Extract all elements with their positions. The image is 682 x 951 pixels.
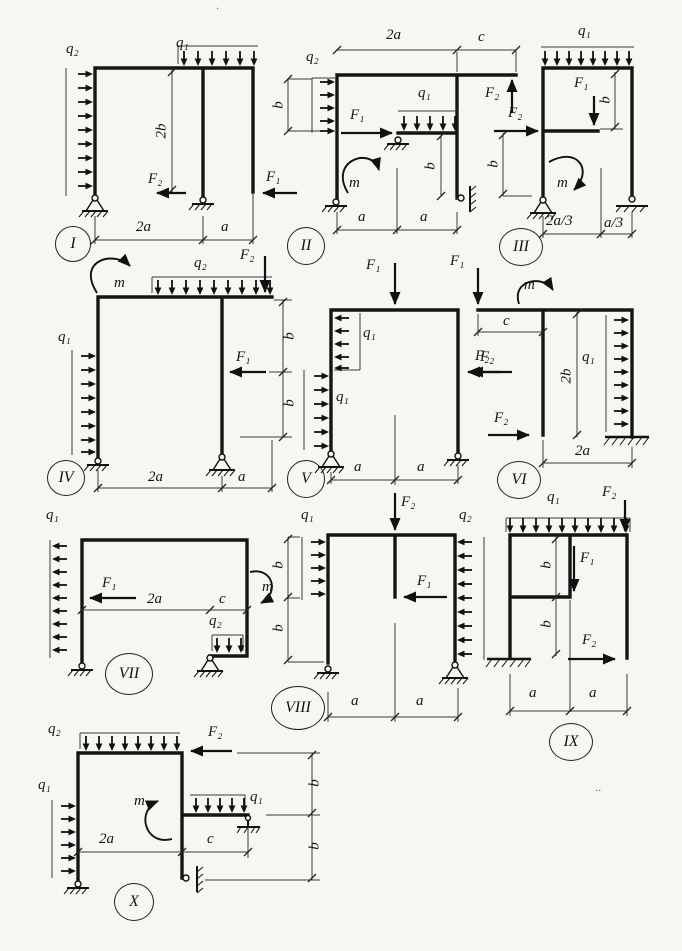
pin-support bbox=[439, 662, 468, 684]
dim-label: c bbox=[478, 30, 485, 45]
dim-label: b bbox=[272, 101, 287, 109]
diagram-VII-structure bbox=[50, 540, 272, 677]
load-label: q₁ bbox=[38, 778, 51, 793]
force-label: F₂ bbox=[494, 411, 508, 426]
diagram-X-structure bbox=[52, 733, 320, 894]
force-label: F₂ bbox=[240, 248, 254, 263]
diagram-I-structure bbox=[66, 46, 297, 244]
dim-label: b bbox=[308, 779, 323, 787]
dim-label: a/3 bbox=[604, 216, 623, 231]
roller-support bbox=[64, 881, 89, 894]
dim-label: a bbox=[358, 210, 366, 225]
force-label: F₁ bbox=[417, 574, 431, 589]
moment-label: m bbox=[134, 794, 145, 809]
force-label: F₁ bbox=[366, 258, 380, 273]
fixed-support bbox=[486, 659, 531, 667]
dim-label: 2b bbox=[155, 124, 170, 139]
dim-label: b bbox=[487, 160, 502, 168]
pin-support bbox=[79, 195, 108, 217]
force-label: F₂ bbox=[475, 349, 489, 364]
roller-support bbox=[189, 197, 214, 210]
load-label: q₁ bbox=[363, 326, 376, 341]
dim-label: a bbox=[238, 470, 246, 485]
dim-label: b bbox=[272, 561, 287, 569]
roller-support bbox=[444, 453, 469, 466]
dim-label: 2a bbox=[136, 220, 151, 235]
roller-support bbox=[84, 458, 109, 471]
force-label: F₂ bbox=[148, 172, 162, 187]
frame-diagrams-svg bbox=[0, 0, 682, 951]
roller-support bbox=[314, 666, 339, 679]
interior-roller-support bbox=[384, 137, 409, 150]
pin-support bbox=[194, 655, 223, 677]
dim-label: b bbox=[540, 561, 555, 569]
dim-label: a bbox=[221, 220, 229, 235]
dim-label: 2a bbox=[147, 592, 162, 607]
member-end-roller-circle bbox=[246, 816, 251, 821]
diagram-number: IX bbox=[549, 723, 593, 761]
dim-label: a bbox=[417, 460, 425, 475]
dim-label: c bbox=[207, 832, 214, 847]
moment-label: m bbox=[114, 276, 125, 291]
diagram-number: II bbox=[287, 227, 325, 265]
diagram-number: VII bbox=[105, 653, 153, 695]
dim-label: b bbox=[283, 399, 298, 407]
roller-support bbox=[322, 199, 347, 212]
moment-label: m bbox=[524, 278, 535, 293]
dim-label: a bbox=[589, 686, 597, 701]
diagram-number: VI bbox=[497, 461, 541, 499]
scan-artifact-dot: ·· bbox=[595, 786, 601, 797]
dim-label: 2a/3 bbox=[546, 214, 573, 229]
load-label: q₁ bbox=[336, 390, 349, 405]
dim-label: a bbox=[416, 694, 424, 709]
dim-label: 2a bbox=[575, 444, 590, 459]
dim-label: 2a bbox=[99, 832, 114, 847]
load-label: q₂ bbox=[459, 508, 472, 523]
moment-label: m bbox=[349, 176, 360, 191]
diagram-VIII-structure bbox=[284, 493, 484, 722]
fixed-support bbox=[604, 437, 649, 445]
dim-label: a bbox=[529, 686, 537, 701]
load-label: q₂ bbox=[194, 256, 207, 271]
dim-label: b bbox=[540, 620, 555, 628]
load-label: q₂ bbox=[306, 50, 319, 65]
load-label: q₁ bbox=[301, 508, 314, 523]
member-end-roller-support bbox=[237, 820, 260, 827]
force-label: F₁ bbox=[350, 108, 364, 123]
load-label: q₁ bbox=[46, 508, 59, 523]
diagram-V-structure bbox=[304, 263, 500, 485]
force-label: F₁ bbox=[266, 170, 280, 185]
scanned-problem-sheet: q₂ q₁ 2b F₂ F₁ 2a a I q₂ 2a c b F₁ q₁ m … bbox=[0, 0, 682, 951]
dim-label: 2b bbox=[560, 369, 575, 384]
force-label: F₁ bbox=[574, 76, 588, 91]
dim-label: c bbox=[503, 314, 510, 329]
scan-artifact-dot: · bbox=[216, 4, 219, 15]
dim-label: b bbox=[272, 624, 287, 632]
dim-label: 2a bbox=[386, 28, 401, 43]
moment-label: m bbox=[557, 176, 568, 191]
diagram-number: IV bbox=[47, 460, 85, 496]
dim-label: b bbox=[283, 332, 298, 340]
load-label: q₁ bbox=[58, 330, 71, 345]
force-label: F₂ bbox=[602, 485, 616, 500]
load-label: q₁ bbox=[547, 490, 560, 505]
roller-circle bbox=[629, 196, 635, 202]
load-label: q₂ bbox=[209, 614, 222, 629]
dim-label: b bbox=[308, 842, 323, 850]
load-label: q₂ bbox=[66, 42, 79, 57]
load-label: q₁ bbox=[250, 790, 263, 805]
moment-label: m bbox=[262, 580, 273, 595]
force-label: F₁ bbox=[102, 576, 116, 591]
dim-label: a bbox=[354, 460, 362, 475]
diagram-number: VIII bbox=[271, 686, 325, 730]
bracket-hinge-circle bbox=[183, 875, 189, 881]
diagram-IV-structure bbox=[72, 256, 292, 492]
pin-support bbox=[206, 454, 235, 476]
dim-label: 2a bbox=[148, 470, 163, 485]
diagram-IX-structure bbox=[486, 500, 631, 716]
load-label: q₁ bbox=[176, 36, 189, 51]
load-label: q₂ bbox=[48, 722, 61, 737]
hinge-circle bbox=[458, 195, 464, 201]
diagram-number: I bbox=[55, 226, 91, 262]
diagram-number: X bbox=[114, 883, 154, 921]
force-label: F₁ bbox=[450, 254, 464, 269]
force-label: F₂ bbox=[401, 495, 415, 510]
dim-label: b bbox=[424, 162, 439, 170]
diagram-number: V bbox=[287, 460, 325, 498]
dim-label: c bbox=[219, 592, 226, 607]
dim-label: a bbox=[351, 694, 359, 709]
force-label: F₁ bbox=[236, 350, 250, 365]
force-label: F₂ bbox=[582, 633, 596, 648]
load-label: q₁ bbox=[418, 86, 431, 101]
diagram-II-structure bbox=[284, 46, 520, 234]
dim-label: b bbox=[599, 96, 614, 104]
force-label: F₂ bbox=[508, 106, 522, 121]
force-label: F₂ bbox=[485, 86, 499, 101]
moment-m-arc bbox=[145, 801, 172, 840]
roller-support bbox=[68, 663, 93, 676]
dim-label: a bbox=[420, 210, 428, 225]
diagram-number: III bbox=[499, 228, 543, 266]
force-label: F₂ bbox=[208, 725, 222, 740]
force-label: F₁ bbox=[580, 551, 594, 566]
load-label: q₁ bbox=[578, 24, 591, 39]
load-label: q₁ bbox=[582, 350, 595, 365]
